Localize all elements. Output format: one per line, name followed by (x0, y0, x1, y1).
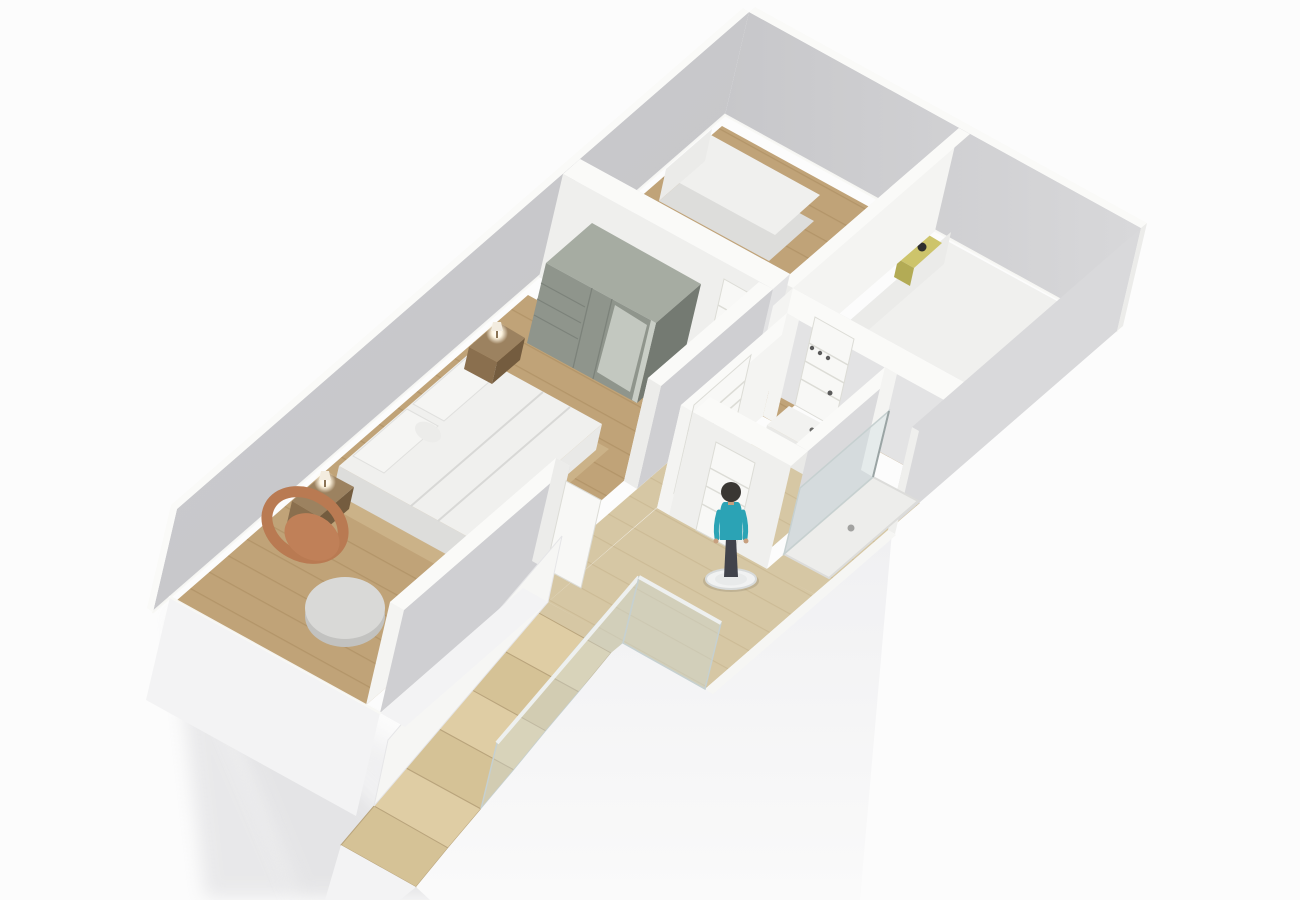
person-hand-right (744, 539, 749, 544)
hook-icon (810, 346, 814, 350)
hook-icon (826, 356, 830, 360)
ottoman (305, 577, 385, 639)
person-hand-left (714, 539, 719, 544)
floorplan-viewport[interactable]: 3D isometric rendering of an upper-floor… (0, 0, 1300, 900)
person-arm-right (743, 512, 746, 538)
shower-drain-icon (848, 525, 855, 532)
lamp-shade-icon (491, 322, 503, 331)
door-handle (828, 391, 833, 396)
floorplan-3d-scene: 3D isometric rendering of an upper-floor… (0, 0, 1300, 900)
lamp-shade-icon (319, 471, 331, 480)
person-torso (720, 502, 743, 540)
hook-icon (818, 351, 822, 355)
person-legs (724, 538, 738, 577)
person-arm-left (716, 512, 719, 538)
person-head (721, 482, 741, 502)
